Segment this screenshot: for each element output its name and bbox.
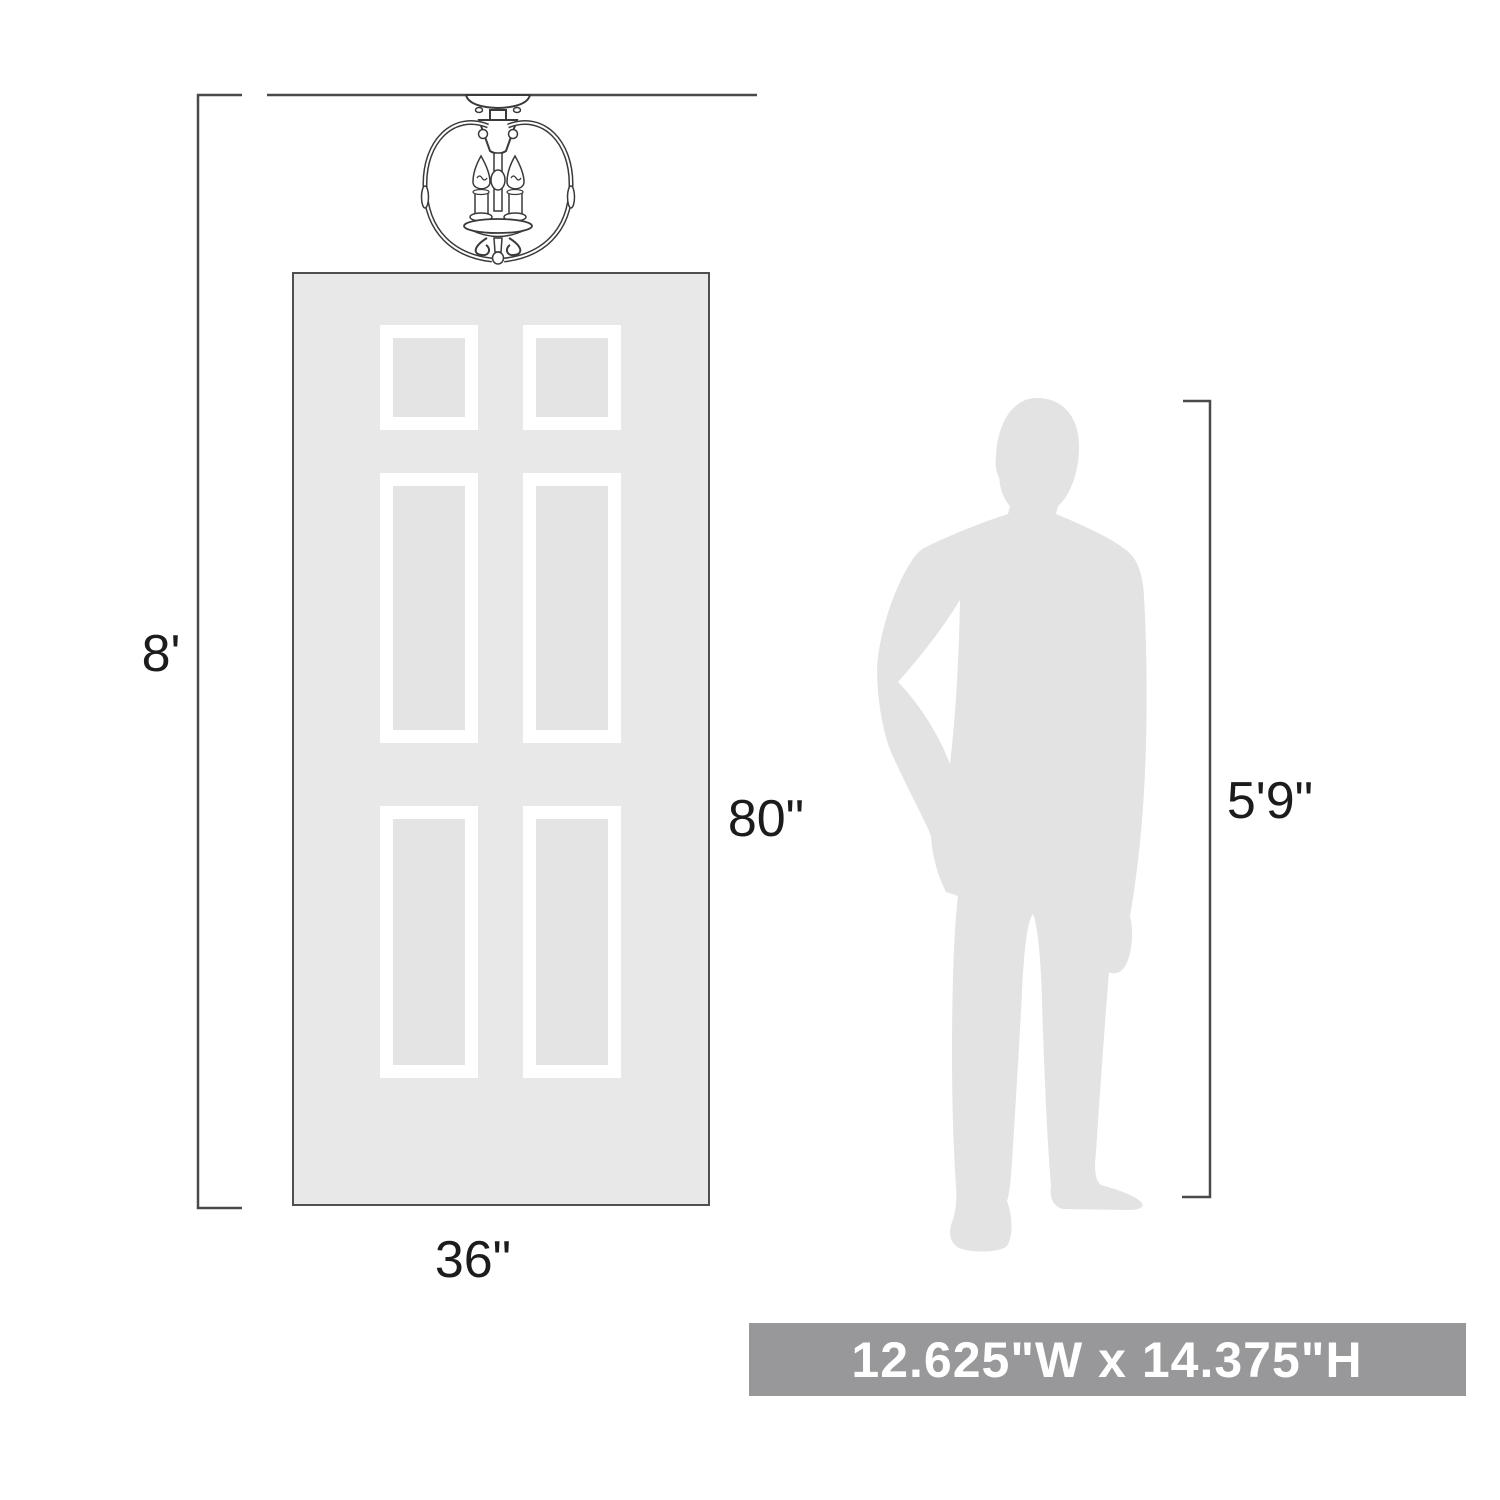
chandelier-canopy-bead [514, 108, 521, 113]
chandelier-side-clip [568, 186, 575, 208]
door-panel [536, 338, 608, 417]
chandelier-canopy [466, 95, 530, 108]
person-height-bracket [1182, 401, 1210, 1197]
door-panel [393, 486, 465, 730]
person-height-label: 5'9" [1227, 772, 1313, 830]
chandelier-finial-ball [493, 252, 504, 264]
diagram-canvas: 8' 80" 36" [0, 0, 1500, 1500]
chandelier-side-clip [422, 186, 429, 208]
person-silhouette [877, 398, 1147, 1252]
door-width-label: 36" [435, 1231, 511, 1289]
person-body [877, 398, 1147, 1252]
door-panel [536, 486, 608, 730]
candle-bulb [507, 156, 524, 189]
chandelier-knob [491, 170, 505, 190]
size-banner-label: 12.625"W x 14.375"H [851, 1332, 1362, 1388]
chandelier-canopy-bead [476, 108, 483, 113]
candle-drip [473, 190, 489, 195]
chandelier-stem [490, 110, 506, 120]
chandelier-line-art [422, 95, 575, 264]
size-banner: 12.625"W x 14.375"H [749, 1323, 1466, 1396]
door-slab [293, 273, 709, 1205]
chandelier-bottom-scroll [507, 238, 520, 255]
chandelier-bottom-scroll [476, 238, 489, 255]
chandelier-finial-stem [494, 238, 502, 252]
size-comparison-diagram: 8' 80" 36" [0, 0, 1500, 1500]
door-panel [393, 819, 465, 1065]
chandelier-scroll [509, 130, 518, 139]
door-height-label: 80" [728, 790, 804, 848]
candle-bulb [473, 156, 490, 189]
candle-drip [507, 190, 523, 195]
size-banner-text: 12.625"W x 14.375"H [851, 1332, 1362, 1388]
ceiling-height-bracket [198, 95, 242, 1208]
chandelier-scroll [479, 130, 488, 139]
door-outline [293, 273, 709, 1205]
door-panel [393, 338, 465, 417]
door-panel [536, 819, 608, 1065]
ceiling-height-label: 8' [142, 625, 181, 683]
